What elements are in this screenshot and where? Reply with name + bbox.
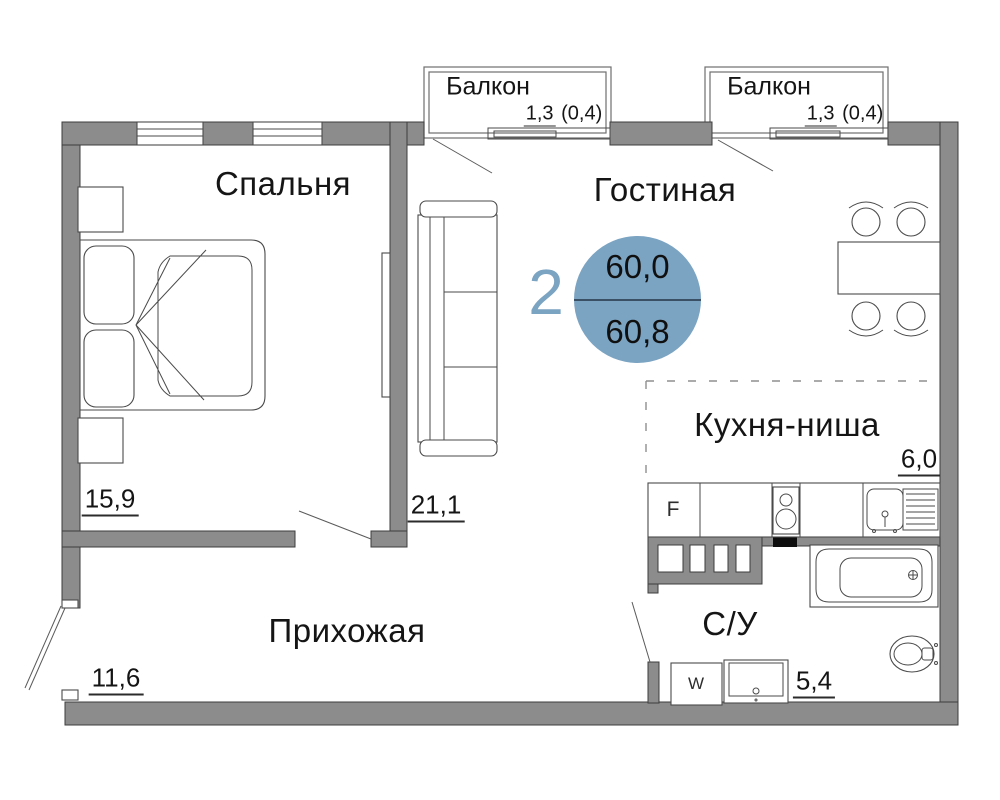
hallway-area: 11,6	[89, 663, 144, 694]
bedroom-window-icon	[253, 122, 322, 145]
nightstand-icon	[78, 418, 123, 463]
sofa-icon	[418, 201, 497, 456]
area-badge: 60,0 60,8	[574, 236, 701, 363]
toilet-icon	[890, 636, 938, 672]
nightstand-icon	[78, 187, 123, 232]
rooms-count: 2	[528, 260, 564, 324]
bedroom-area: 15,9	[82, 484, 139, 515]
balcony-1-label: Балкон	[446, 73, 530, 102]
dining-table-icon	[838, 202, 940, 336]
vanity-sink-icon	[724, 660, 788, 703]
bathroom-label: С/У	[702, 605, 757, 643]
tv-icon	[382, 253, 390, 397]
bedroom-window-icon	[137, 122, 203, 145]
balcony-2-door-swing	[718, 140, 773, 171]
living-room-label: Гостиная	[594, 171, 737, 209]
balcony-1-door-swing	[433, 139, 492, 173]
fridge-label: F	[667, 498, 680, 522]
chair-icon	[897, 302, 925, 330]
balcony-2-label: Балкон	[727, 73, 811, 102]
balcony-1-area: 1,3 (0,4)	[524, 103, 603, 126]
bathtub-icon	[810, 545, 938, 607]
bed-icon	[80, 240, 265, 410]
stove-icon	[773, 487, 799, 534]
entrance-door-icon	[25, 600, 78, 700]
chair-icon	[852, 302, 880, 330]
bathroom-door-swing	[632, 602, 650, 662]
living-room-area: 21,1	[408, 490, 465, 521]
chair-icon	[897, 208, 925, 236]
kitchen-label: Кухня-ниша	[694, 406, 880, 444]
chair-icon	[852, 208, 880, 236]
bedroom-door-swing	[299, 511, 371, 539]
kitchen-area: 6,0	[898, 444, 940, 475]
kitchen-counter-icon	[648, 483, 940, 537]
hallway-label: Прихожая	[269, 612, 426, 650]
floor-plan: Спальня Гостиная Кухня-ниша Прихожая С/У…	[0, 0, 1000, 800]
shaft-icon	[648, 537, 762, 593]
bathroom-area: 5,4	[793, 666, 835, 697]
washing-machine-label: W	[688, 674, 704, 694]
bedroom-label: Спальня	[215, 165, 351, 203]
balcony-2-area: 1,3 (0,4)	[805, 103, 884, 126]
